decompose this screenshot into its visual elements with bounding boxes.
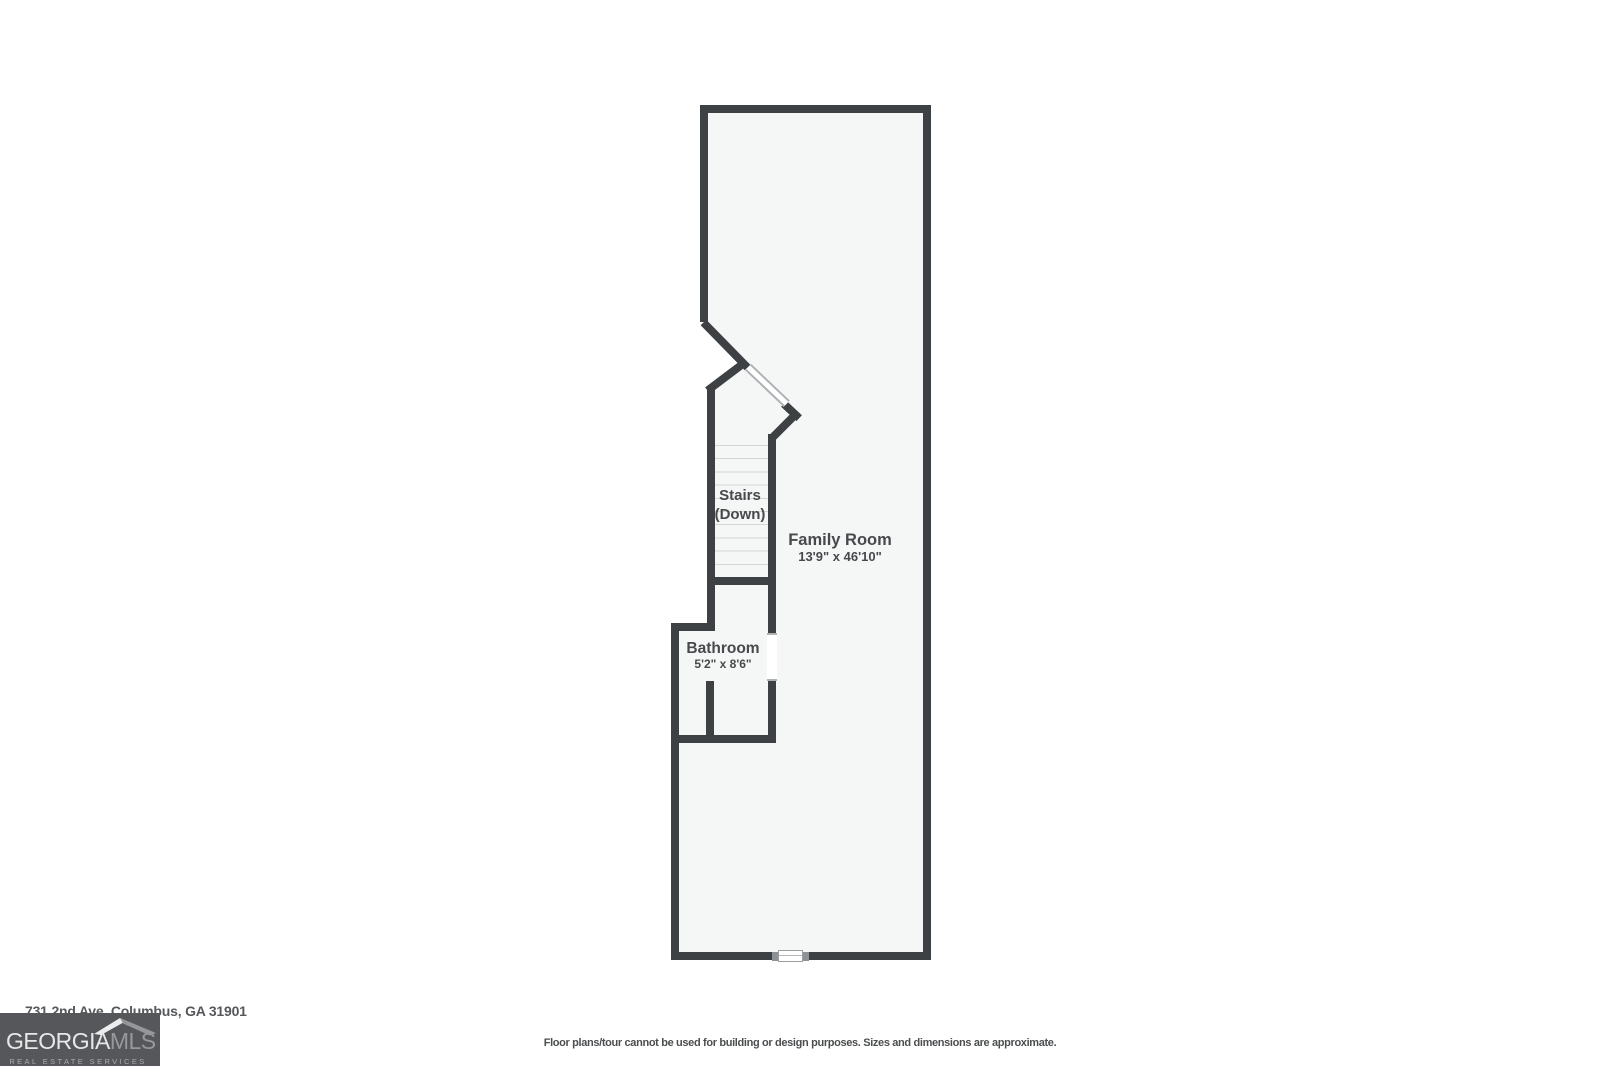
wall-bathroom-inner: [706, 681, 714, 743]
logo-georgia: GEORGIA: [6, 1028, 110, 1054]
wall-stairs-right: [768, 434, 776, 634]
logo-mls: MLS: [110, 1028, 156, 1054]
disclaimer-text: Floor plans/tour cannot be used for buil…: [0, 1036, 1600, 1050]
bathroom-dimensions: 5'2" x 8'6": [686, 658, 759, 671]
family-room-dimensions: 13'9" x 46'10": [788, 550, 892, 564]
stairs-direction: (Down): [715, 505, 766, 524]
wall-bathroom-right-lower: [768, 680, 776, 743]
window-icon: [778, 950, 803, 962]
georgia-mls-logo: GEORGIAMLS REAL ESTATE SERVICES: [0, 1013, 160, 1066]
wall-bathroom-top: [671, 623, 715, 631]
wall-left-lower: [671, 623, 679, 960]
bathroom-door: [767, 633, 777, 681]
wall-right: [923, 105, 931, 960]
logo-brand-text: GEORGIAMLS: [6, 1028, 156, 1054]
stairs-name: Stairs: [715, 486, 766, 505]
bathroom-label: Bathroom 5'2" x 8'6": [686, 640, 759, 671]
logo-tagline: REAL ESTATE SERVICES: [4, 1057, 152, 1066]
wall-top: [700, 105, 931, 113]
family-room-label: Family Room 13'9" x 46'10": [788, 531, 892, 564]
wall-left-upper: [700, 105, 708, 322]
stairs-label: Stairs (Down): [715, 486, 766, 524]
wall-stairs-bottom: [707, 577, 776, 585]
wall-bathroom-bottom: [671, 735, 776, 743]
bathroom-name: Bathroom: [686, 640, 759, 657]
family-room-name: Family Room: [788, 531, 892, 549]
window-stub-right: [803, 952, 809, 961]
floor-plan-page: Family Room 13'9" x 46'10" Stairs (Down)…: [0, 0, 1600, 1066]
